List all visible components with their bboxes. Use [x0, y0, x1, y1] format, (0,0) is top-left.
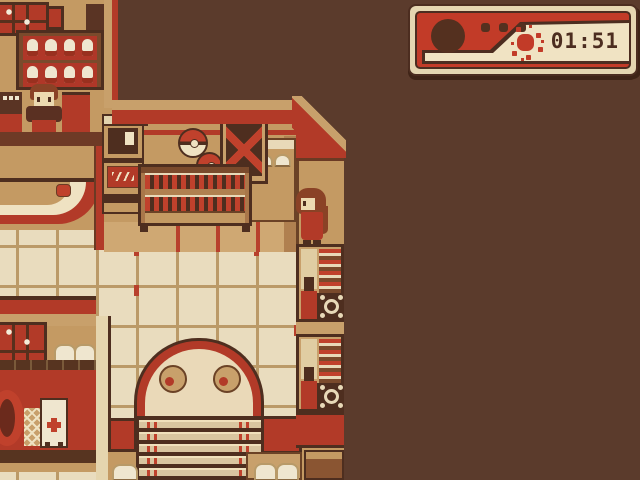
- books: [319, 339, 341, 383]
- sun-icon: [517, 34, 534, 51]
- bench: [246, 452, 302, 480]
- npc-dress: [301, 212, 323, 240]
- doll-item: [45, 39, 56, 56]
- shop-door: [62, 92, 90, 134]
- potion-row: [145, 173, 245, 189]
- dot-icon: [517, 23, 526, 32]
- bookshelf: [296, 244, 344, 322]
- potion-row: [145, 195, 245, 211]
- display-shelf: [16, 30, 104, 90]
- void-border-red: [112, 110, 308, 124]
- doll-item: [82, 66, 93, 83]
- books: [319, 249, 341, 293]
- rail: [0, 360, 96, 370]
- dot-icon: [481, 23, 490, 32]
- void-top: [118, 0, 344, 100]
- floor-accent: [134, 285, 139, 296]
- wall-sign: [48, 8, 62, 28]
- power-circle-icon: [431, 19, 465, 53]
- gear-emblem: [317, 293, 341, 319]
- bookshelf: [296, 334, 344, 412]
- counter: [0, 132, 104, 180]
- doll-item: [64, 39, 75, 56]
- void-border-red: [112, 0, 118, 110]
- walkway-seam: [176, 222, 180, 252]
- gear-emblem: [317, 383, 341, 409]
- game-viewport[interactable]: 01:51: [0, 0, 640, 480]
- stair-pillar: [110, 420, 135, 450]
- bench-bun: [112, 464, 138, 480]
- browsing-npc: [294, 186, 332, 248]
- staircase: [136, 416, 264, 480]
- walkway: [104, 222, 296, 252]
- doll-item: [27, 66, 38, 83]
- dot-icon: [499, 23, 508, 32]
- door-knob: [159, 365, 187, 393]
- void-border-tan: [112, 100, 302, 110]
- storage-box: [304, 450, 344, 480]
- side-display: [0, 92, 22, 134]
- bench-bun: [276, 463, 299, 480]
- machine-label: [107, 166, 141, 188]
- doll-item: [45, 66, 56, 83]
- walkway-seam: [256, 222, 260, 252]
- side-room: [0, 296, 96, 480]
- display-row: [23, 36, 97, 60]
- doll-item: [82, 39, 93, 56]
- clock-display: 01:51: [551, 29, 619, 53]
- doll-item: [27, 39, 38, 56]
- roof-corner: [292, 96, 346, 158]
- clerk-npc: [26, 84, 62, 134]
- machine-screen: [108, 128, 138, 154]
- door-knob: [213, 365, 241, 393]
- void-border-tan: [104, 0, 112, 108]
- doll-item: [64, 66, 75, 83]
- rug-item: [56, 184, 71, 197]
- lattice-panel: [24, 408, 40, 446]
- stair-pillar: [262, 418, 300, 452]
- shelf-side: [86, 4, 104, 32]
- library-base-band: [296, 412, 344, 448]
- poster: [40, 398, 68, 448]
- walkway-seam: [216, 222, 220, 252]
- poketch-hud: 01:51: [408, 4, 638, 76]
- potion-shelf: [138, 164, 252, 226]
- bench-bun: [254, 463, 277, 480]
